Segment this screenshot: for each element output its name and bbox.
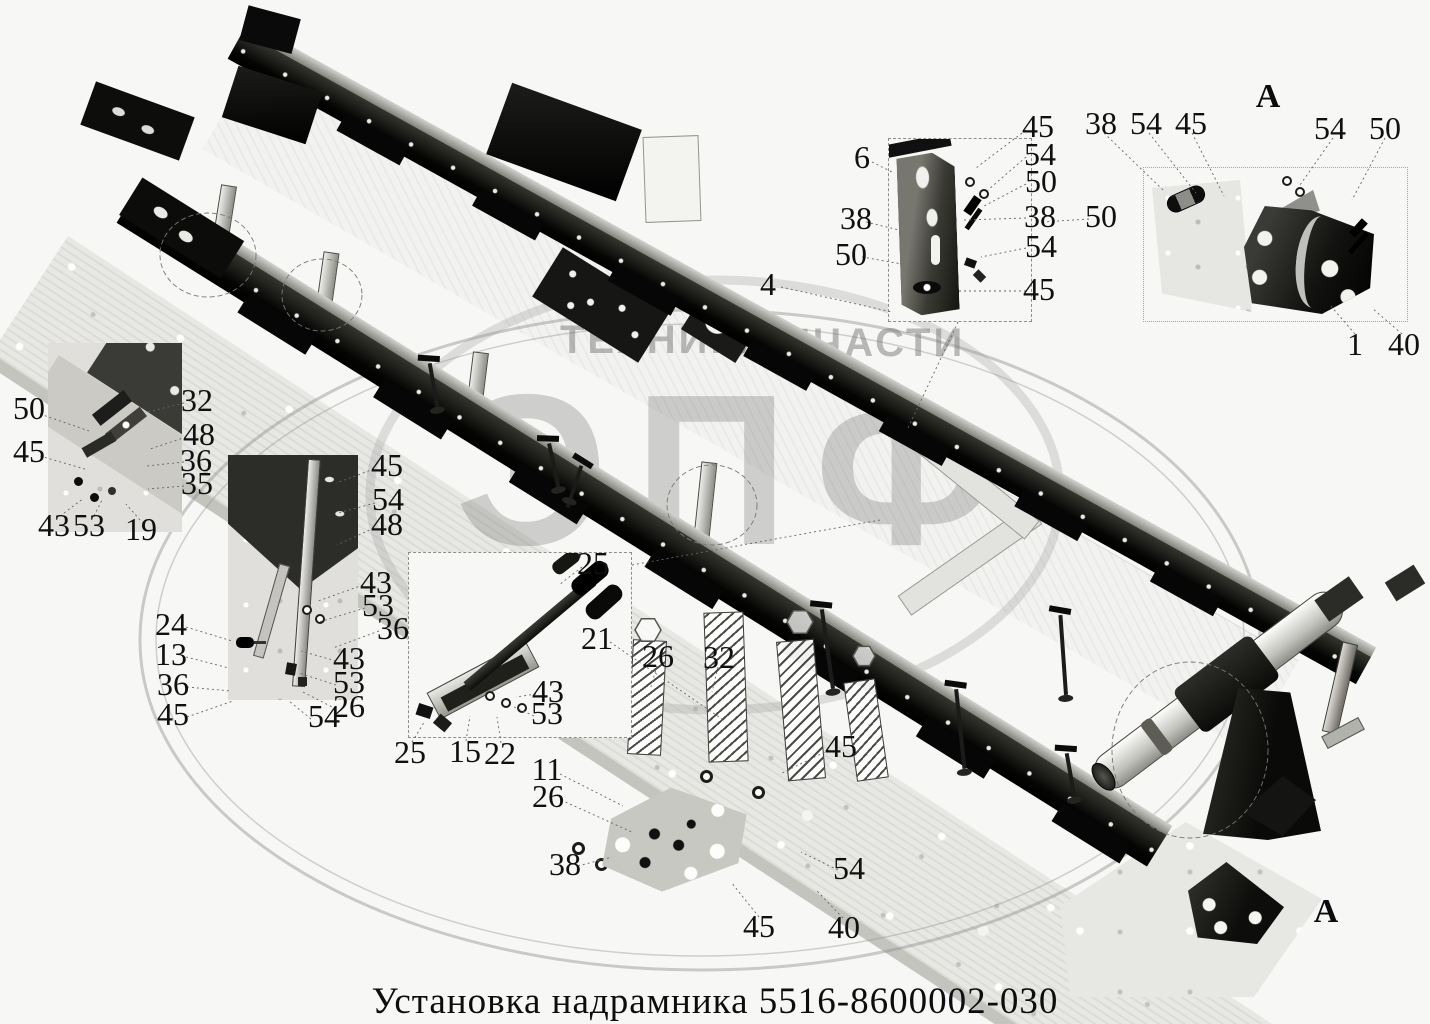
part-callout-40: 40: [828, 911, 860, 943]
part-callout-48: 48: [371, 508, 403, 540]
part-callout-45: 45: [1023, 273, 1055, 305]
part-callout-38: 38: [840, 202, 872, 234]
part-callout-54: 54: [1025, 230, 1057, 262]
part-callout-54: 54: [833, 852, 865, 884]
part-callout-45: 45: [13, 435, 45, 467]
part-callout-19: 19: [125, 513, 157, 545]
part-callout-26: 26: [532, 780, 564, 812]
part-callout-21: 21: [581, 622, 613, 654]
part-callout-50: 50: [1085, 200, 1117, 232]
part-callout-25: 25: [577, 547, 609, 579]
part-callout-45: 45: [743, 910, 775, 942]
part-callout-53: 53: [531, 697, 563, 729]
part-callout-54: 54: [1130, 107, 1162, 139]
drawing-title: Установка надрамника 5516-8600002-030: [0, 980, 1430, 1023]
view-label-А: А: [1314, 895, 1339, 929]
part-callout-45: 45: [1175, 107, 1207, 139]
part-callout-45: 45: [371, 449, 403, 481]
part-callout-45: 45: [157, 698, 189, 730]
part-callout-26: 26: [642, 640, 674, 672]
part-callout-38: 38: [1085, 107, 1117, 139]
part-callout-36: 36: [377, 612, 409, 644]
part-callout-50: 50: [13, 392, 45, 424]
part-callout-1: 1: [1347, 328, 1363, 360]
part-callout-6: 6: [854, 141, 870, 173]
part-callout-54: 54: [1314, 112, 1346, 144]
part-callout-4: 4: [760, 268, 776, 300]
view-label-А: А: [1256, 80, 1281, 114]
parts-diagram-canvas: ТЕХНИКА ЗАПЧАСТИ ЭПФ: [0, 0, 1430, 1024]
part-callout-15: 15: [449, 735, 481, 767]
part-callout-45: 45: [825, 730, 857, 762]
callout-layer: 6385044554503854453854455054501405045324…: [0, 0, 1430, 1024]
part-callout-40: 40: [1388, 328, 1420, 360]
part-callout-50: 50: [1025, 165, 1057, 197]
part-callout-50: 50: [1369, 112, 1401, 144]
part-callout-54: 54: [308, 700, 340, 732]
part-callout-35: 35: [181, 467, 213, 499]
part-callout-32: 32: [181, 384, 213, 416]
part-callout-43: 43: [38, 509, 70, 541]
part-callout-25: 25: [394, 736, 426, 768]
part-callout-50: 50: [835, 238, 867, 270]
part-callout-32: 32: [703, 641, 735, 673]
part-callout-38: 38: [549, 848, 581, 880]
part-callout-53: 53: [73, 509, 105, 541]
part-callout-22: 22: [484, 737, 516, 769]
